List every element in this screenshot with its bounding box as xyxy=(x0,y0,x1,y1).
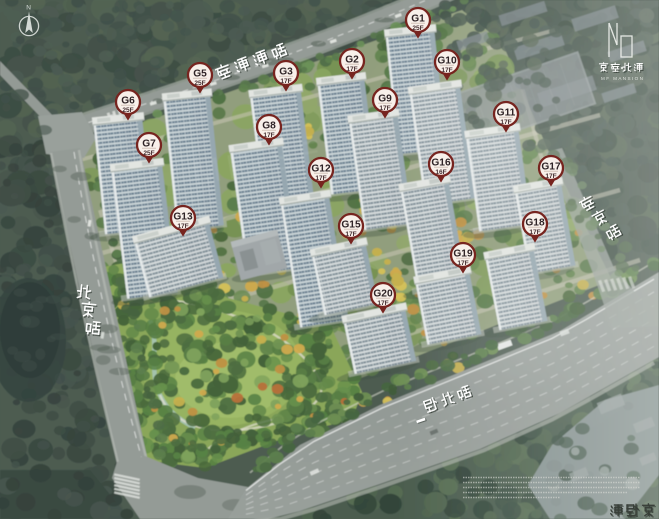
svg-text:17F: 17F xyxy=(263,132,274,139)
svg-text:25F: 25F xyxy=(143,150,154,157)
svg-text:17F: 17F xyxy=(345,231,356,238)
svg-text:17F: 17F xyxy=(177,223,188,230)
svg-text:25F: 25F xyxy=(412,25,423,32)
svg-text:N: N xyxy=(26,5,31,12)
svg-text:17F: 17F xyxy=(441,67,452,74)
svg-text:17F: 17F xyxy=(377,300,388,307)
svg-text:17F: 17F xyxy=(529,229,540,236)
svg-text:17F: 17F xyxy=(457,260,468,267)
svg-text:17F: 17F xyxy=(379,105,390,112)
svg-text:17F: 17F xyxy=(500,119,511,126)
svg-text:16F: 16F xyxy=(435,169,446,176)
svg-text:MF MANSION: MF MANSION xyxy=(601,76,644,81)
svg-text:25F: 25F xyxy=(122,107,133,114)
svg-text:17F: 17F xyxy=(346,66,357,73)
svg-text:17F: 17F xyxy=(315,175,326,182)
svg-text:17F: 17F xyxy=(545,173,556,180)
svg-text:25F: 25F xyxy=(194,80,205,87)
svg-text:17F: 17F xyxy=(280,78,291,85)
